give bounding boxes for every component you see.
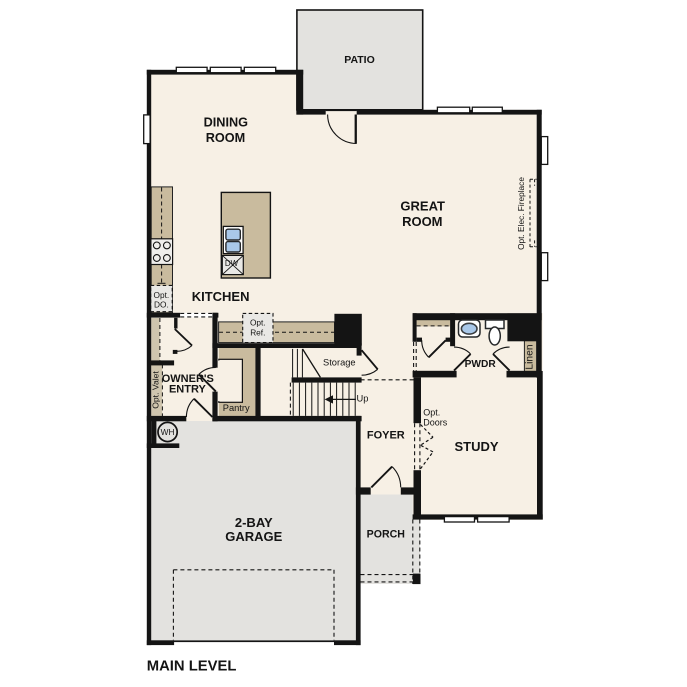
svg-text:Opt. Valet: Opt. Valet [150, 371, 160, 409]
svg-text:Ref.: Ref. [250, 327, 265, 337]
svg-text:MAIN LEVEL: MAIN LEVEL [147, 659, 237, 675]
svg-text:Opt.: Opt. [423, 408, 440, 418]
svg-text:Up: Up [357, 394, 369, 404]
svg-text:PORCH: PORCH [367, 528, 405, 540]
svg-text:STUDY: STUDY [454, 439, 498, 454]
svg-text:ENTRY: ENTRY [169, 384, 207, 396]
svg-text:DW: DW [225, 259, 239, 268]
svg-text:Opt. Elec. Fireplace: Opt. Elec. Fireplace [516, 177, 526, 250]
svg-text:Pantry: Pantry [223, 403, 250, 413]
svg-text:FOYER: FOYER [367, 430, 405, 442]
svg-text:Opt.: Opt. [250, 318, 266, 328]
svg-text:Storage: Storage [323, 357, 356, 367]
svg-text:Linen: Linen [524, 344, 535, 369]
svg-text:DO.: DO. [154, 300, 169, 310]
svg-text:GREAT: GREAT [400, 199, 445, 214]
svg-text:ROOM: ROOM [402, 214, 442, 229]
svg-text:WH: WH [161, 427, 175, 437]
svg-text:2-BAY: 2-BAY [235, 515, 273, 530]
svg-text:PATIO: PATIO [344, 54, 375, 66]
svg-text:ROOM: ROOM [206, 131, 245, 145]
svg-text:Opt.: Opt. [154, 290, 170, 300]
svg-text:GARAGE: GARAGE [225, 529, 282, 544]
svg-text:DINING: DINING [204, 115, 249, 129]
svg-text:PWDR: PWDR [465, 359, 497, 370]
svg-text:Doors: Doors [423, 418, 448, 428]
svg-text:KITCHEN: KITCHEN [192, 289, 250, 304]
